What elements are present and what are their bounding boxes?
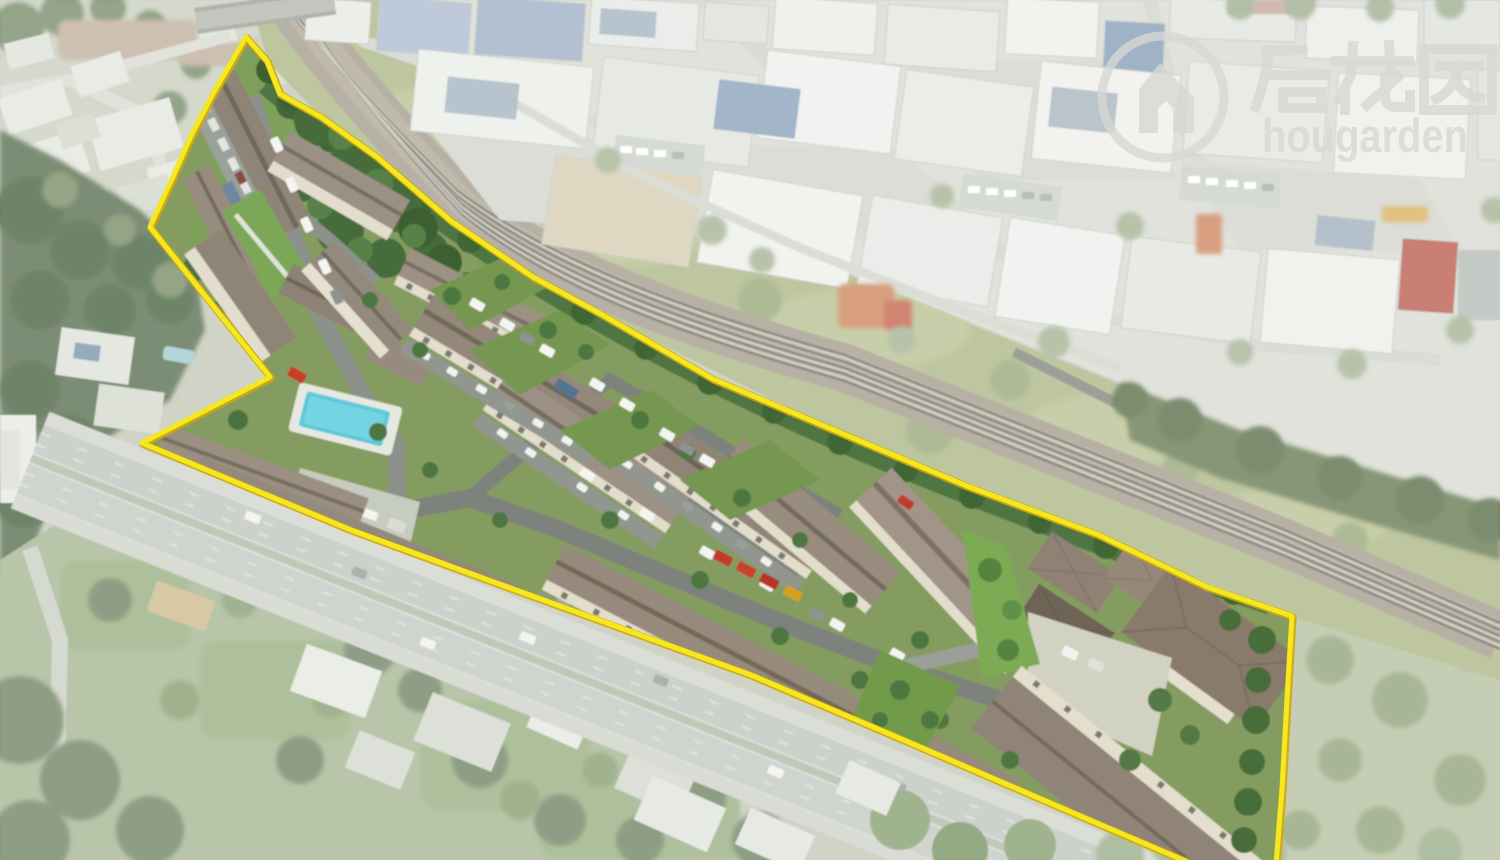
svg-text:hougarden: hougarden (1262, 109, 1468, 162)
